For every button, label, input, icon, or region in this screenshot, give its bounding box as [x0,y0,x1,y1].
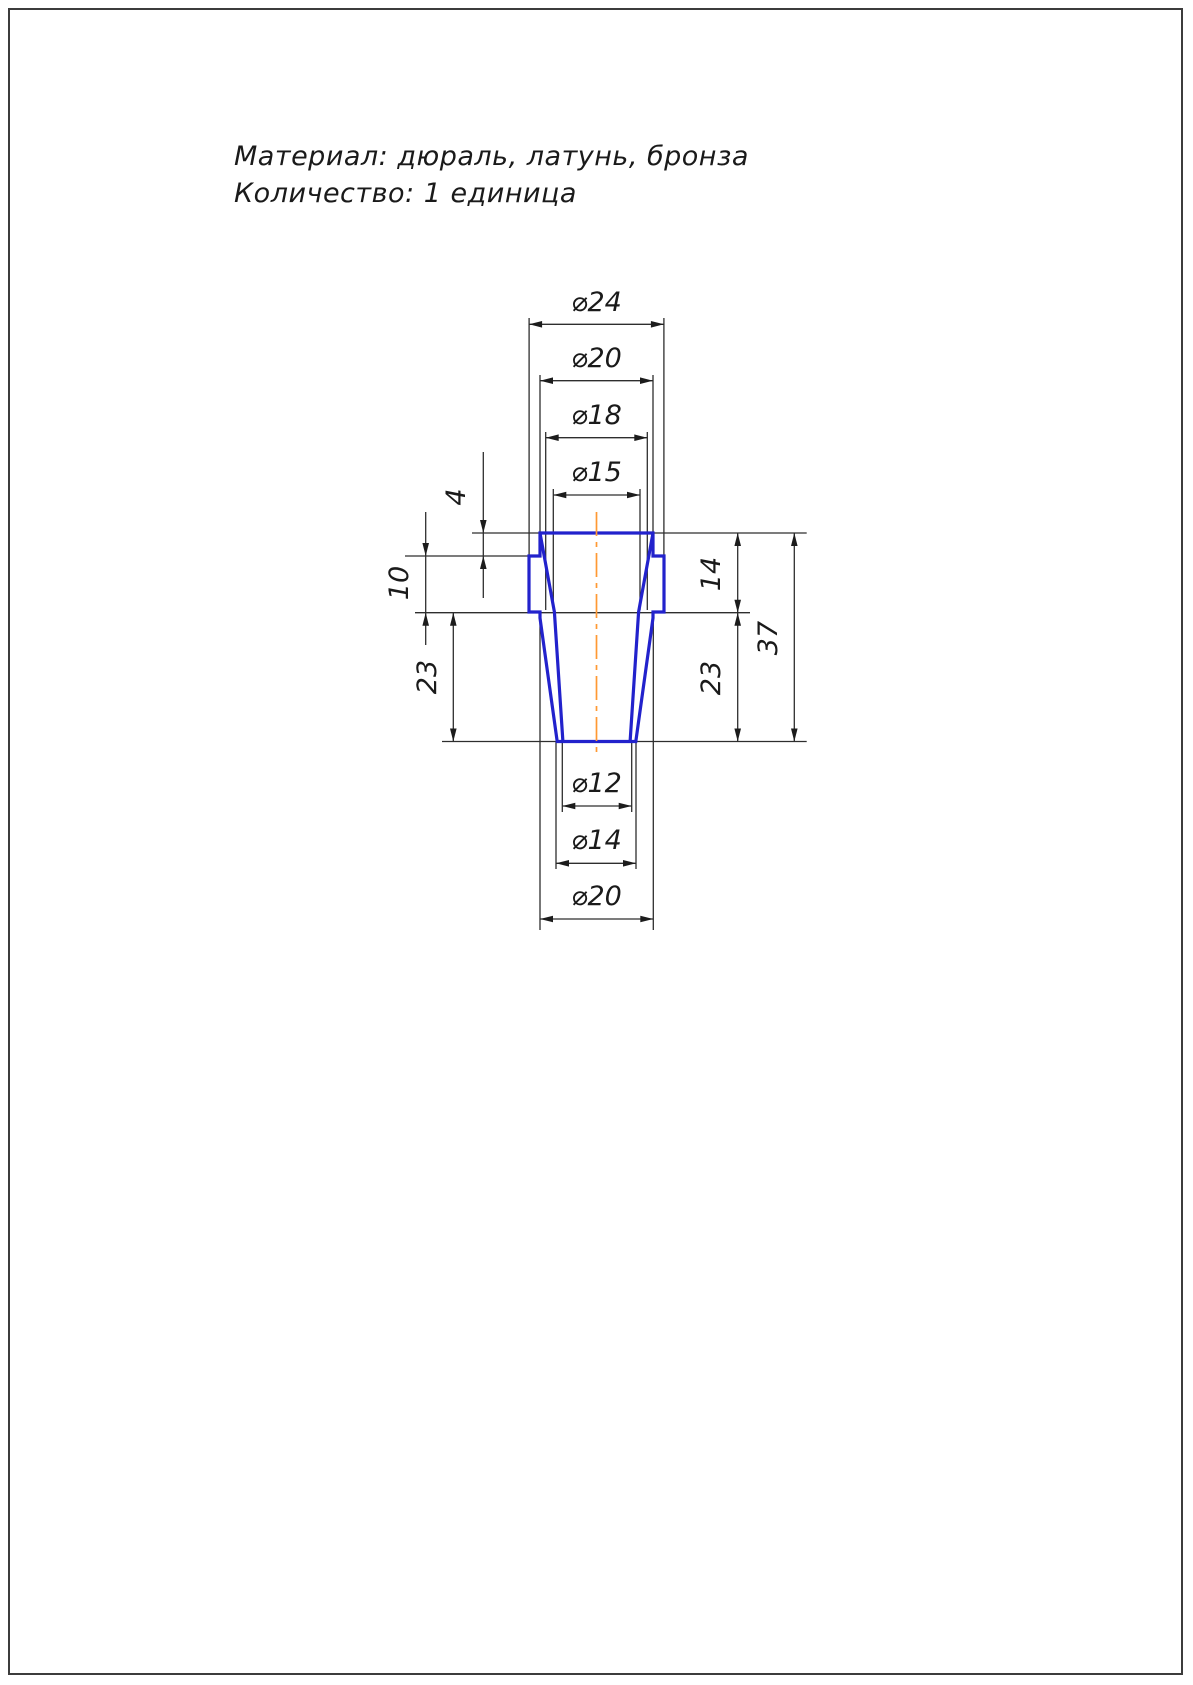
dimension-label: 37 [753,621,784,655]
dimension-arrowhead [422,543,429,556]
dimension-d24: ⌀24 [529,287,664,328]
technical-drawing-canvas: ⌀24⌀20⌀18⌀15⌀12⌀14⌀2041023142337 [0,0,1193,1685]
dimension-arrowhead [562,803,575,810]
dimension-arrowhead [556,860,569,867]
dimension-label: ⌀20 [571,881,622,912]
dimension-arrowhead [529,321,542,328]
dimension-arrowhead [553,492,566,499]
dimension-arrowhead [734,533,741,546]
drawing-page: Материал: дюраль, латунь, бронза Количес… [0,0,1193,1685]
dimension-arrowhead [540,377,553,384]
dimension-arrowhead [640,377,653,384]
dimension-label: 23 [696,661,727,695]
dimension-arrowhead [540,916,553,923]
dimension-label: ⌀15 [571,457,622,488]
dimension-arrowhead [651,321,664,328]
dimension-v14r: 14 [696,533,741,613]
dimension-label: ⌀18 [571,400,622,431]
dimension-v23r: 23 [696,613,741,742]
dimension-label: ⌀24 [571,287,622,318]
dimension-arrowhead [450,729,457,742]
dimension-arrowhead [734,613,741,626]
dimension-arrowhead [634,434,647,441]
dimension-d15: ⌀15 [553,457,640,498]
dimension-label: ⌀14 [571,825,622,856]
dimension-arrowhead [480,520,487,533]
dimension-arrowhead [640,916,653,923]
dimension-label: 23 [412,660,443,694]
dimension-arrowhead [791,729,798,742]
dimension-v37: 37 [753,533,798,742]
dimension-arrowhead [480,556,487,569]
dimension-label: 14 [696,557,727,591]
dimension-arrowhead [791,533,798,546]
dimension-arrowhead [619,803,632,810]
dimension-d20t: ⌀20 [540,343,653,384]
dimension-d20b: ⌀20 [540,881,653,922]
dimension-arrowhead [546,434,559,441]
dimension-label: 10 [384,566,415,600]
dimension-label: ⌀12 [571,768,622,799]
dimension-arrowhead [422,613,429,626]
dimension-label: 4 [441,488,472,505]
dimension-arrowhead [734,600,741,613]
dimension-v4: 4 [441,452,487,598]
dimension-d18: ⌀18 [546,400,648,441]
dimension-d14b: ⌀14 [556,825,636,867]
dimension-arrowhead [627,492,640,499]
dimension-arrowhead [623,860,636,867]
dimension-arrowhead [734,729,741,742]
dimension-arrowhead [450,613,457,626]
dimension-label: ⌀20 [571,343,622,374]
dimension-v23l: 23 [412,613,457,742]
dimension-v10: 10 [384,512,429,645]
dimension-d12: ⌀12 [562,768,631,809]
